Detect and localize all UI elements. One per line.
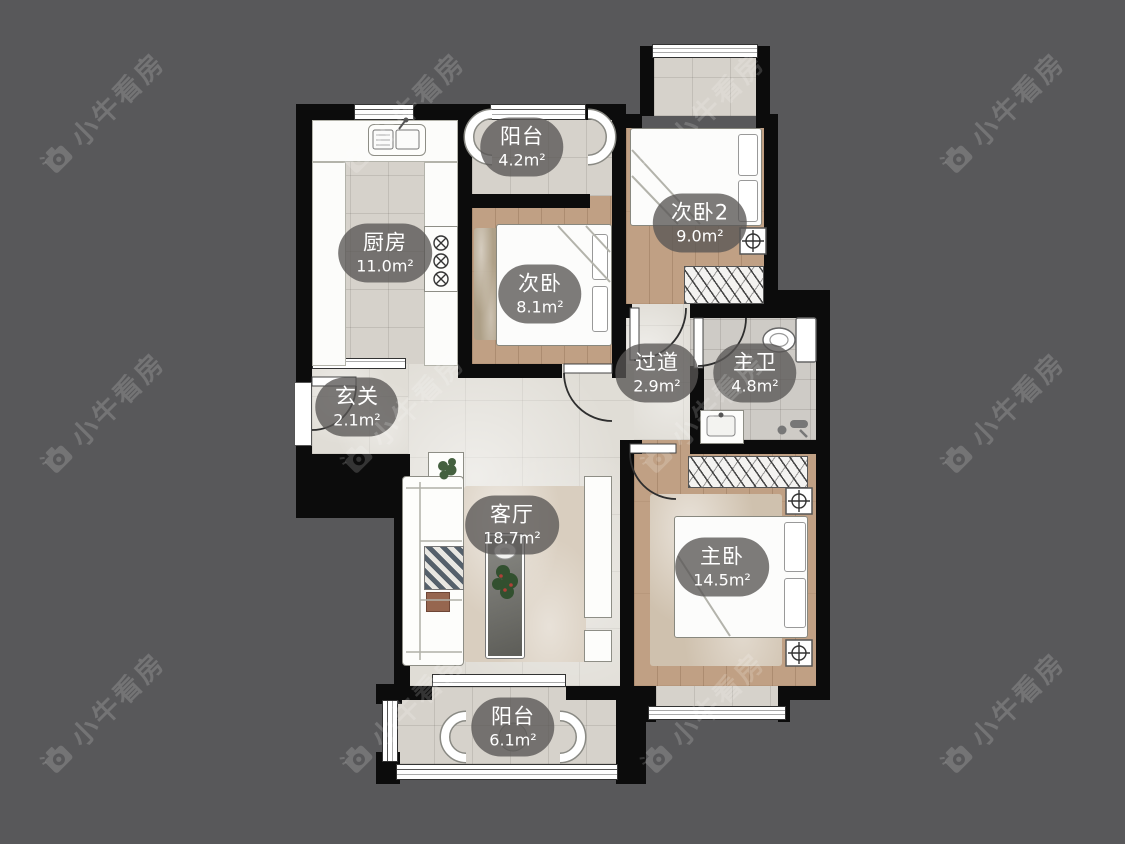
room-area: 9.0m²	[671, 226, 729, 246]
watermark: 小牛看房	[31, 42, 172, 183]
room-label-balcony-top: 阳台 4.2m²	[480, 117, 563, 176]
bay-bottom-floor	[656, 686, 778, 708]
watermark: 小牛看房	[931, 642, 1072, 783]
wall-segment	[458, 364, 562, 378]
wall-segment	[790, 686, 830, 700]
niu-camera-logo-icon	[333, 733, 381, 781]
master-pillow-1	[784, 522, 806, 572]
wall-segment	[612, 114, 626, 378]
room-label-master-bath: 主卫 4.8m²	[713, 343, 796, 402]
wall-segment	[690, 304, 816, 318]
niu-camera-logo-icon	[933, 433, 981, 481]
wall-segment	[816, 290, 830, 686]
room-area: 11.0m²	[356, 256, 414, 276]
living-balcony-slider	[432, 674, 566, 687]
niu-camera-logo-icon	[933, 133, 981, 181]
room-name: 主卫	[731, 350, 778, 376]
bedroom2-pillow-1	[592, 234, 608, 280]
living-tv-cabinet	[584, 476, 612, 618]
niu-camera-logo-icon	[33, 433, 81, 481]
watermark: 小牛看房	[31, 642, 172, 783]
wall-segment	[620, 440, 642, 454]
bedroom2-pillow-2	[592, 286, 608, 332]
wall-segment	[566, 686, 618, 700]
bay-top-floor	[654, 58, 756, 116]
floorplan-canvas: 阳台 4.2m² 次卧2 9.0m² 厨房 11.0m² 次卧 8.1m² 过道…	[0, 0, 1125, 844]
watermark-text: 小牛看房	[960, 642, 1072, 754]
room-label-entry: 玄关 2.1m²	[315, 377, 398, 436]
wall-segment	[620, 454, 634, 686]
room-label-living-room: 客厅 18.7m²	[465, 495, 559, 554]
room-name: 次卧2	[671, 200, 729, 226]
room-area: 18.7m²	[483, 528, 541, 548]
wall-segment	[458, 120, 472, 366]
room-label-bedroom2: 次卧 8.1m²	[498, 264, 581, 323]
room-label-corridor: 过道 2.9m²	[615, 343, 698, 402]
room-name: 客厅	[483, 502, 541, 528]
balcony-bottom-window	[396, 764, 618, 780]
niu-camera-logo-icon	[33, 733, 81, 781]
room-name: 次卧	[516, 271, 563, 297]
room-name: 过道	[633, 350, 680, 376]
room-area: 4.8m²	[731, 376, 778, 396]
watermark: 小牛看房	[931, 342, 1072, 483]
room-area: 2.1m²	[333, 410, 380, 430]
wall-segment	[398, 686, 432, 700]
watermark-text: 小牛看房	[60, 42, 172, 154]
niu-camera-logo-icon	[933, 733, 981, 781]
watermark: 小牛看房	[931, 42, 1072, 183]
watermark-text: 小牛看房	[60, 342, 172, 454]
bay-top-window	[652, 44, 758, 58]
balcony-left-window	[382, 700, 398, 762]
watermark-text: 小牛看房	[960, 342, 1072, 454]
master-pillow-2	[784, 578, 806, 628]
bedroom2-2-wardrobe	[684, 266, 764, 304]
room-label-bedroom2-2: 次卧2 9.0m²	[653, 193, 747, 252]
living-side-item	[426, 592, 450, 612]
room-name: 阳台	[498, 124, 545, 150]
watermark-text: 小牛看房	[60, 642, 172, 754]
bedroom2-2-pillow-1	[738, 134, 758, 176]
bedroom2-rug	[474, 228, 498, 340]
wall-segment	[296, 454, 410, 518]
room-area: 14.5m²	[693, 570, 751, 590]
room-name: 玄关	[333, 384, 380, 410]
wall-segment	[612, 304, 632, 318]
kitchen-window	[354, 104, 414, 120]
master-wardrobe	[688, 456, 808, 488]
room-label-master-bedroom: 主卧 14.5m²	[675, 537, 769, 596]
bath-vanity	[700, 410, 744, 444]
niu-camera-logo-icon	[33, 133, 81, 181]
wall-segment	[472, 194, 590, 208]
room-area: 8.1m²	[516, 297, 563, 317]
kitchen-sink	[368, 124, 426, 156]
bay-bottom-window	[648, 706, 786, 720]
room-name: 阳台	[489, 704, 536, 730]
living-tv-cabinet-2	[584, 630, 612, 662]
living-ottoman	[424, 546, 464, 590]
watermark-text: 小牛看房	[960, 42, 1072, 154]
watermark: 小牛看房	[31, 342, 172, 483]
room-label-balcony-bottom: 阳台 6.1m²	[471, 697, 554, 756]
room-name: 主卧	[693, 544, 751, 570]
wall-segment	[756, 46, 770, 116]
wall-segment	[764, 114, 778, 304]
wall-segment	[616, 686, 646, 784]
room-name: 厨房	[356, 230, 414, 256]
room-area: 4.2m²	[498, 150, 545, 170]
wall-segment	[296, 104, 312, 384]
room-label-kitchen: 厨房 11.0m²	[338, 223, 432, 282]
room-area: 2.9m²	[633, 376, 680, 396]
room-area: 6.1m²	[489, 730, 536, 750]
entry-door-frame	[294, 382, 312, 446]
